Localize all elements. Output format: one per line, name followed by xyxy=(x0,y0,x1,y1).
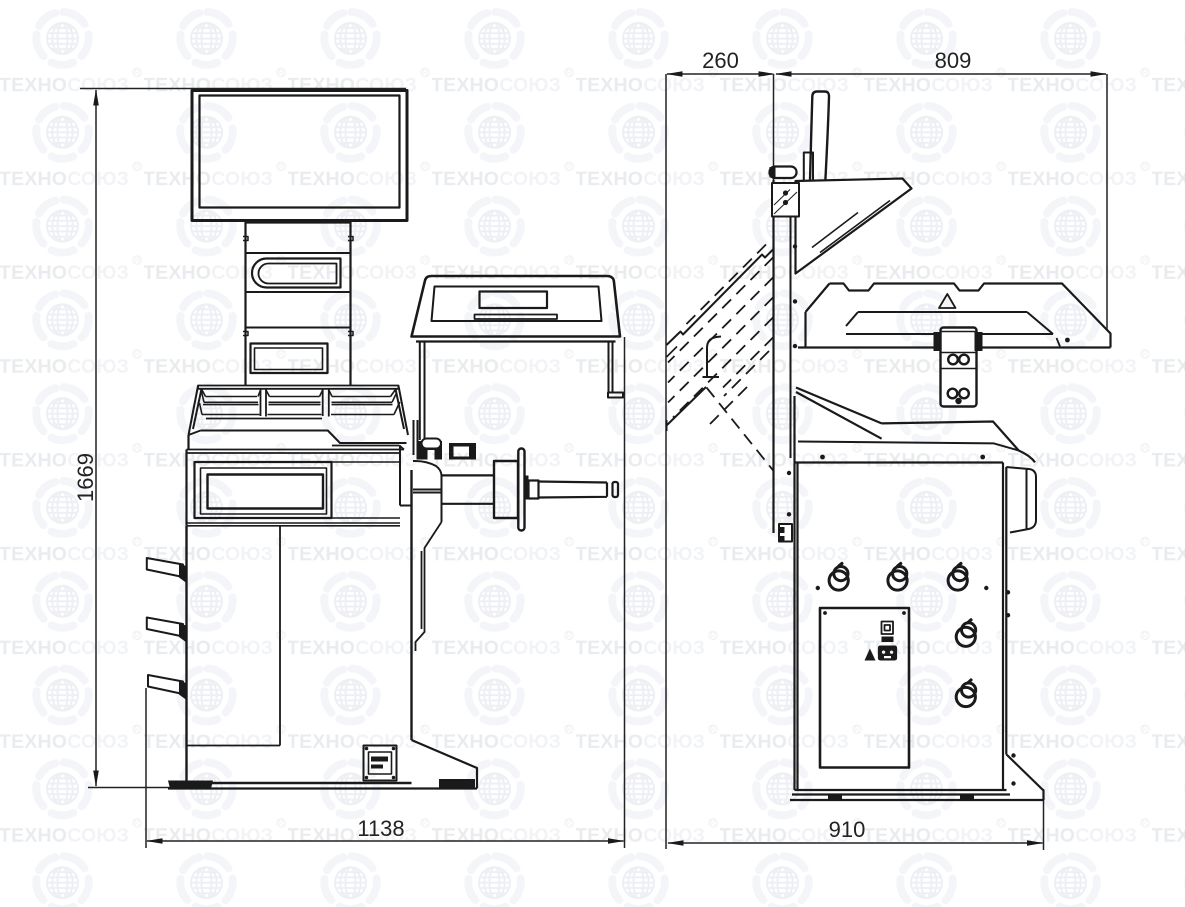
svg-text:809: 809 xyxy=(935,48,972,73)
svg-text:260: 260 xyxy=(702,48,739,73)
svg-text:1138: 1138 xyxy=(357,816,404,841)
svg-text:1669: 1669 xyxy=(73,453,98,502)
svg-text:910: 910 xyxy=(829,817,866,842)
